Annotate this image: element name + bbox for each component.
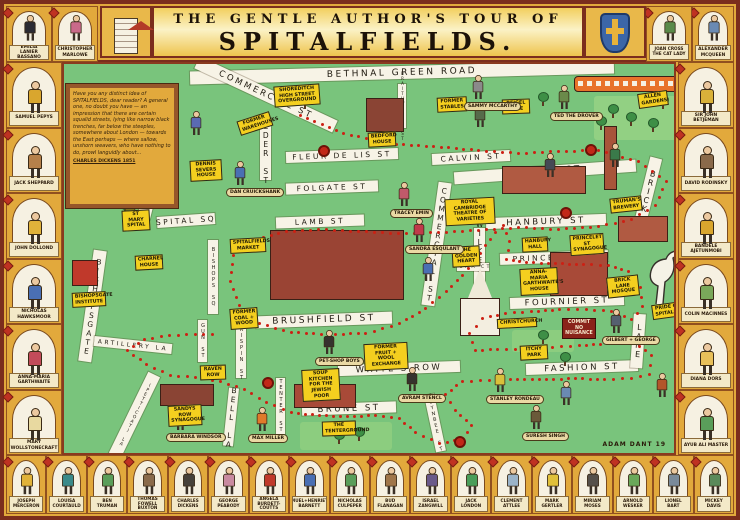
tour-route-dot [470,424,473,427]
tour-route-dot [422,435,425,438]
tree-trunk [304,105,306,109]
figure-coat [709,474,721,487]
tour-route-dot [551,309,554,312]
figure-illustration [699,343,715,375]
figure-coat [28,351,42,366]
figure-illustration [304,467,318,494]
figure-name-plate: MICKEY DAVIS [697,496,731,512]
tour-route-dot [525,152,528,155]
figure-legs [533,422,540,429]
figure-legs [468,487,476,495]
tour-route-dot [481,349,484,352]
figure-coat [235,167,246,178]
figure-illustration [506,467,520,494]
figure-illustration [494,368,506,392]
tour-route-dot [357,230,360,233]
figure-legs [590,487,598,495]
tree-drawing [560,352,569,366]
tour-route-dot [474,349,477,352]
tour-route-dot [390,325,393,328]
figure-legs [703,300,712,309]
tour-route-dot [485,228,488,231]
tour-route-dot [605,223,608,226]
figure-name-plate: JACK SHEPPARD [9,176,59,191]
tour-route-dot [538,378,541,381]
tour-route-dot [623,315,626,318]
figure-coat [700,154,714,169]
tour-route-dot [567,308,570,311]
tree-foliage [626,112,637,122]
figure-illustration [708,467,722,494]
tour-route-dot [585,308,588,311]
tour-route-dot [516,378,519,381]
figure-name-plate: THOMAS FOWELL BUXTON [130,496,164,512]
figure-illustration [27,343,43,375]
tour-route-dot [620,268,623,271]
tour-route-dot [585,344,588,347]
street-brushfield-st: BRUSHFIELD ST [256,312,392,329]
tour-route-dot [532,261,535,264]
figure-legs [425,274,432,281]
border-arch-cell-christopher-marlowe: CHRISTOPHER MARLOWE [52,6,98,62]
figure-illustration [699,277,715,309]
figure-illustration [413,218,425,242]
tour-route-dot [557,150,560,153]
tour-route-dot [599,343,602,346]
tour-route-dot [533,151,536,154]
tour-route-dot [646,209,649,212]
border-arch-cell-lionel-bart: LIONEL BART [653,455,693,514]
tour-route-dot [151,337,154,340]
tour-route-dot [644,165,647,168]
tour-route-dot [285,230,288,233]
street-folgate-st: FOLGATE ST [286,180,378,194]
church-spire [468,268,492,298]
tour-route-dot [630,218,633,221]
figure-coat [628,474,640,487]
border-arch-cell-nicholas-hawksmoor: NICHOLAS HAWKSMOOR [6,259,62,325]
tour-route-dot [211,333,214,336]
figure-legs [477,120,484,127]
tour-route-dot [521,311,524,314]
figure-name-plate: AYUB ALI MASTER [681,438,731,453]
tour-route-dot [581,226,584,229]
tour-route-dot [153,367,156,370]
tour-route-dot [453,230,456,233]
landmark-label-itchy-park: ITCHY PARK [520,344,549,361]
tour-route-dot [299,114,302,117]
tour-route-dot [589,378,592,381]
figure-coat [610,149,621,160]
tree-trunk [600,126,602,130]
tour-route-dot [614,266,617,269]
figure-legs [266,487,274,495]
tour-route-dot [425,145,428,148]
border-arch-cell-emilia-lanier-bassano: EMILIA LANIER BASSANO [6,6,52,62]
tour-route-dot [565,150,568,153]
figure-illustration [20,467,34,494]
tour-route-dot [297,331,300,334]
tour-route-dot [317,228,320,231]
figure-illustration [70,15,83,41]
tour-route-dot [507,249,510,252]
tour-route-dot [402,143,405,146]
figure-illustration [182,467,196,494]
tour-route-dot [461,230,464,233]
tour-route-dot [282,329,285,332]
figure-coat [28,285,42,300]
tour-route-dot [530,310,533,313]
landmark-label-dennis-severs-house: DENNIS SEVERS HOUSE [189,159,222,182]
landmark-label-raven-row: RAVEN ROW [200,365,227,381]
street-petticoat-la: (PETTICOAT) LA [109,372,160,455]
street-name-label: LAMB ST [295,216,346,227]
pub-marker [454,436,466,448]
figure-name-plate: COLIN MACINNES [681,307,731,322]
figure-illustration [664,15,677,41]
figure-illustration [699,146,715,178]
tour-route-dot [569,345,572,348]
tour-route-dot [230,271,233,274]
tour-route-dot [523,378,526,381]
figure-name-plate: JACK LONDON [454,496,488,512]
tour-route-dot [477,229,480,232]
border-arch-cell-mark-gertler: MARK GERTLER [532,455,572,514]
figure-name-plate: EMILIA LANIER BASSANO [9,45,49,60]
figure-legs [31,169,40,178]
border-arch-cell-sir-john-betjeman: SIR JOHN BETJEMAN [678,62,734,128]
tour-route-dot [414,431,417,434]
person-label-tracey-emin: TRACEY EMIN [390,209,433,218]
figure-name-plate: SAMUEL PEPYS [9,111,59,126]
tour-route-dot [589,226,592,229]
figure-legs [237,178,244,185]
figure-illustration [384,467,398,494]
street-lamb-st: LAMB ST [276,214,364,228]
street-gun-st: GUN ST [198,320,207,362]
sandys-row-building [160,384,214,406]
figure-name-plate: SIR JOHN BETJEMAN [681,111,731,126]
figure-coat [345,474,357,487]
tour-route-dot [290,411,293,414]
street-name-label: SPITAL SQ [156,214,217,227]
tour-route-dot [622,220,625,223]
tour-route-dot [238,304,241,307]
tour-route-dot [650,354,653,357]
landmark-label-former-stables: FORMER STABLES [437,96,468,113]
tour-route-dot [638,345,641,348]
tour-route-dot [258,397,261,400]
tour-route-dot [512,259,515,262]
tour-route-dot [143,338,146,341]
figure-coat [28,220,42,235]
tour-route-dot [293,230,296,233]
tour-route-dot [411,315,414,318]
tour-route-dot [274,327,277,330]
tour-route-dot [440,146,443,149]
figure-illustration [24,15,37,41]
bedford-house-building [366,98,404,132]
figure-coat [183,474,195,487]
priory-tower-illustration [100,6,152,58]
figure-illustration [699,408,715,440]
tower-drawing [114,18,138,54]
tour-route-dot [186,375,189,378]
figure-illustration [610,309,622,333]
title-line1: THE GENTLE AUTHOR'S TOUR OF [154,12,582,27]
tour-route-dot [185,333,188,336]
border-arch-cell-colin-macinnes: COLIN MACINNES [678,259,734,325]
figure-illustration [587,467,601,494]
figure-coat [257,413,268,424]
figure-legs [711,487,719,495]
figure-name-plate: MARK GERTLER [535,496,569,512]
landmark-label-former-coal-wood: FORMER COAL + WOOD [229,307,258,330]
tour-route-dot [132,354,135,357]
dickens-quote-text: Have you any distinct idea of SPITALFIEL… [73,91,171,156]
tour-route-dot [489,348,492,351]
border-arch-cell-angela-burdett-coutts: ANGELA BURDETT-COUTTS [249,455,289,514]
tour-route-dot [353,415,356,418]
figure-legs [509,487,517,495]
tour-route-dot [312,332,315,335]
tour-route-dot [547,262,550,265]
person-label-suresh-singh: SURESH SINGH [522,432,569,441]
figure-illustration [27,212,43,244]
landmark-label-the-tenterground: THE TENTERGROUND [322,420,357,436]
figure-name-plate: SAMUEL+HENRIETTA BARNETT [292,496,326,512]
border-arch-cell-alexander-mcqueen: ALEXANDER McQUEEN [692,6,734,62]
tour-route-dot [599,264,602,267]
figure-legs [185,487,193,495]
tour-route-dot [177,375,180,378]
figure-illustration [27,146,43,178]
tour-route-dot [229,280,232,283]
figure-legs [64,487,72,495]
tour-route-dot [541,227,544,230]
tour-route-dot [568,263,571,266]
border-arch-cell-samuel-henrietta-barnett: SAMUEL+HENRIETTA BARNETT [289,455,329,514]
tour-route-dot [509,378,512,381]
figure-coat [700,416,714,431]
figure-legs [409,384,416,391]
tree-trunk [564,362,566,366]
tree-trunk [612,114,614,118]
tour-route-dot [160,335,163,338]
figure-illustration [699,81,715,113]
pub-marker [318,145,330,157]
tour-route-dot [567,377,570,380]
figure-illustration [560,381,572,405]
figure-coat [385,474,397,487]
tour-route-dot [639,375,642,378]
figure-name-plate: DIANA DORS [681,373,731,388]
tour-route-dot [639,286,642,289]
tour-route-dot [621,156,624,159]
figure-illustration [223,467,237,494]
tour-route-dot [403,422,406,425]
pub-marker [560,207,572,219]
figure-illustration [546,467,560,494]
tour-route-dot [398,417,401,420]
tour-route-dot [469,229,472,232]
figure-name-plate: CLEMENT ATTLEE [494,496,528,512]
figure-illustration [27,408,43,440]
tour-route-dot [332,415,335,418]
figure-coat [708,21,719,33]
tree-trunk [358,437,360,441]
tour-route-dot [374,414,377,417]
figure-coat [24,21,35,33]
figure-legs [31,235,40,244]
border-arch-cell-george-peabody: GEORGE PEABODY [208,455,248,514]
princelet-synagogue-building [550,252,608,296]
tour-route-dot [398,322,401,325]
tour-route-dot [505,348,508,351]
border-arch-cell-ayub-ali-master: AYUB ALI MASTER [678,390,734,456]
figure-name-plate: JOSEPH MERCERON [9,496,43,512]
border-arch-cell-ben-truman: BEN TRUMAN [87,455,127,514]
figure-coat [473,81,484,92]
tour-route-dot [640,296,643,299]
tour-route-dot [437,231,440,234]
figure-coat [143,474,155,487]
tour-route-dot [194,333,197,336]
tour-route-dot [525,261,528,264]
figure-coat [426,474,438,487]
street-tenter-st: TENTER ST [276,378,285,434]
figure-illustration [256,407,268,431]
tour-route-dot [592,343,595,346]
tour-route-dot [235,296,238,299]
tour-route-dot [540,262,543,265]
figure-legs [416,235,423,242]
tour-route-dot [169,374,172,377]
landmark-label-st-mary-spital: ST MARY SPITAL [121,209,150,231]
tour-route-dot [475,325,478,328]
figure-coat [21,474,33,487]
figure-name-plate: JOAN CROSS THE CAT LADY [649,44,689,60]
shield-icon [600,13,630,53]
overground-train [574,76,676,92]
tour-route-dot [454,409,457,412]
figure-coat [28,154,42,169]
tour-route-dot [484,244,487,247]
tour-route-dot [513,311,516,314]
landmark-label-anna-maria-garthwaite-s-house: ANNA-MARIA GARTHWAITE'S HOUSE [519,267,558,296]
tour-route-dot [517,152,520,155]
figure-coat [28,416,42,431]
tree-drawing [626,112,635,126]
figure-legs [347,487,355,495]
tour-route-dot [557,228,560,231]
tour-route-dot [531,378,534,381]
tour-route-dot [417,144,420,147]
figure-legs [703,169,712,178]
spitalfields-market [270,230,404,300]
tour-route-dot [346,415,349,418]
street-spital-sq: SPITAL SQ [157,213,216,228]
tour-route-dot [658,175,661,178]
tour-route-dot [537,310,540,313]
tour-route-dot [651,170,654,173]
tour-route-dot [607,264,610,267]
heron-drawing [642,244,676,306]
tour-route-dot [449,401,452,404]
tour-route-dot [551,346,554,349]
artist-signature: ADAM DANT 19 [602,441,666,448]
tour-route-dot [305,332,308,335]
tree-foliage [538,330,549,340]
tree-trunk [542,340,544,344]
tour-route-dot [614,222,617,225]
landmark-label-bedford-house: BEDFORD HOUSE [368,131,397,148]
figure-illustration [234,161,246,185]
figure-coat [102,474,114,487]
figure-name-plate: NICHOLAS HAWKSMOOR [9,307,59,322]
figure-legs [659,390,666,397]
landmark-label-charnel-house: CHARNEL HOUSE [135,254,164,271]
street-name-label: BELL LA [224,385,238,448]
tour-route-dot [304,413,307,416]
tour-route-dot [597,149,600,152]
dickens-quote-attribution: CHARLES DICKENS 1851 [73,159,171,164]
tree-trunk [338,440,340,444]
person-label-dan-cruickshank: DAN CRUICKSHANK [226,188,284,197]
tree-trunk [542,102,544,106]
red-kiosk [72,260,98,286]
figure-illustration [656,373,668,397]
tour-route-dot [505,258,508,261]
tour-route-dot [593,309,596,312]
street-name-label: FASHION ST [544,361,620,374]
tour-route-dot [648,373,651,376]
tour-route-dot [309,229,312,232]
tour-route-dot [297,412,300,415]
tour-route-dot [311,413,314,416]
tour-route-dot [549,228,552,231]
tour-route-dot [430,438,433,441]
tour-route-dot [504,312,507,315]
tour-route-dot [373,330,376,333]
street-name-label: CALVIN ST [440,151,501,163]
figure-illustration [465,467,479,494]
figure-legs [306,487,314,495]
tour-route-dot [219,380,222,383]
figure-name-plate: CHRISTOPHER MARLOWE [55,45,95,60]
figure-illustration [27,277,43,309]
figure-name-plate: DAVID RODINSKY [681,176,731,191]
tour-route-dot [410,144,413,147]
tour-route-dot [525,226,528,229]
figure-legs [563,398,570,405]
border-arch-cell-john-dollond: JOHN DOLLOND [6,193,62,259]
tour-route-dot [637,160,640,163]
tour-route-dot [282,408,285,411]
tour-route-dot [349,230,352,233]
tour-route-dot [630,318,633,321]
street-name-label: BISHOPS SQ [211,247,216,307]
spitalfields-crest [584,6,646,58]
christ-church [460,298,500,336]
tour-route-dot [270,234,273,237]
figure-legs [710,33,717,40]
tour-route-dot [517,226,520,229]
tree-drawing [538,330,547,344]
tour-route-dot [231,263,234,266]
figure-coat [664,21,675,33]
tour-route-dot [578,344,581,347]
